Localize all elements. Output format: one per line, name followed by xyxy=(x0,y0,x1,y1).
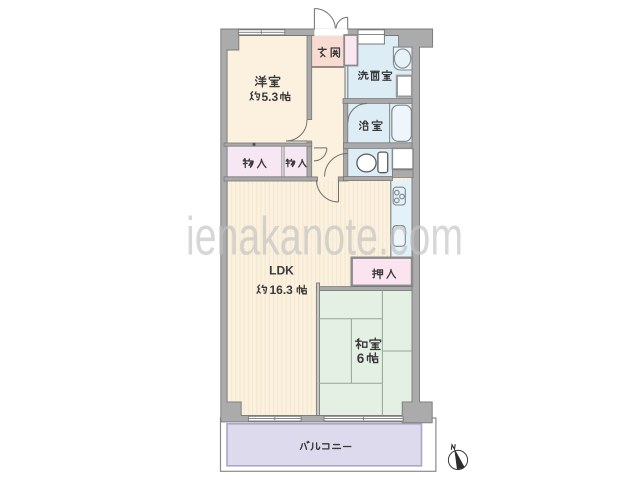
svg-text:6: 6 xyxy=(357,351,365,366)
svg-text:ienakanote.com: ienakanote.com xyxy=(186,207,463,267)
svg-text:16.3: 16.3 xyxy=(270,283,294,297)
svg-text:5.3: 5.3 xyxy=(262,90,279,104)
